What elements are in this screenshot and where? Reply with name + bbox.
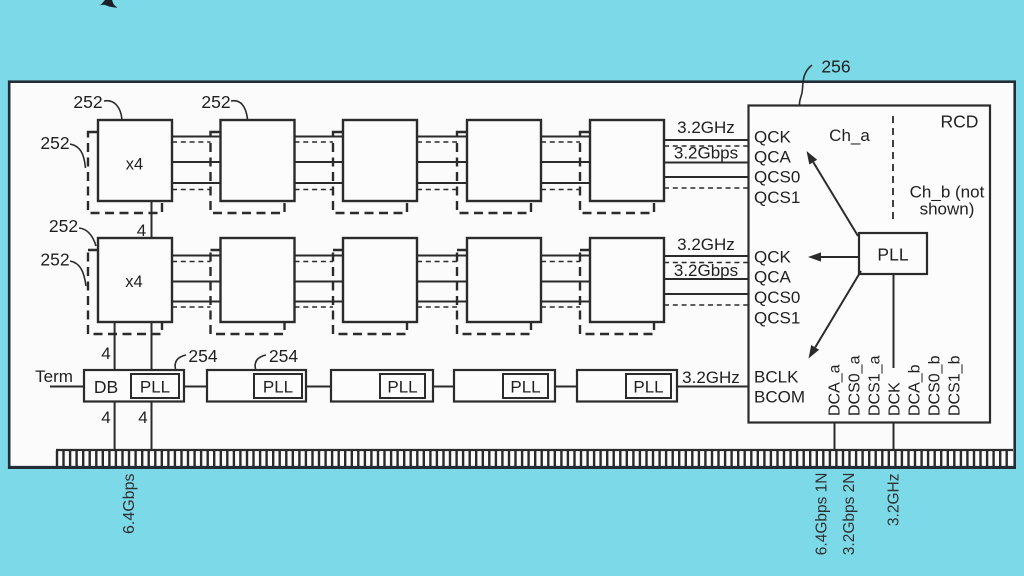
svg-text:QCS0: QCS0: [754, 168, 800, 187]
svg-text:QCA: QCA: [754, 268, 792, 287]
svg-text:QCK: QCK: [754, 248, 792, 267]
svg-text:PLL: PLL: [140, 378, 170, 397]
svg-text:252: 252: [201, 92, 230, 112]
svg-text:DCA_a: DCA_a: [827, 364, 844, 416]
svg-text:DCS1_a: DCS1_a: [867, 355, 884, 416]
svg-text:x4: x4: [125, 273, 142, 291]
svg-text:QCS1: QCS1: [754, 309, 800, 328]
svg-text:QCS1: QCS1: [754, 188, 800, 207]
svg-text:256: 256: [821, 57, 850, 77]
svg-text:3.2GHz: 3.2GHz: [682, 368, 740, 387]
svg-text:PLL: PLL: [387, 378, 417, 397]
svg-text:PLL: PLL: [510, 378, 540, 397]
svg-text:DCS0_a: DCS0_a: [847, 355, 864, 416]
svg-text:QCK: QCK: [754, 128, 792, 147]
svg-text:Term: Term: [35, 367, 73, 386]
svg-text:BCLK: BCLK: [754, 368, 799, 387]
svg-text:4: 4: [137, 221, 146, 240]
svg-text:4: 4: [138, 408, 147, 427]
svg-text:6.4Gbps 1N: 6.4Gbps 1N: [814, 473, 831, 556]
svg-text:254: 254: [269, 346, 298, 366]
svg-text:3.2GHz: 3.2GHz: [886, 474, 903, 527]
svg-text:3.2Gbps 2N: 3.2Gbps 2N: [841, 473, 858, 556]
svg-text:6.4Gbps: 6.4Gbps: [121, 474, 138, 534]
svg-text:252: 252: [49, 216, 78, 236]
svg-text:RCD: RCD: [941, 112, 979, 132]
svg-text:3.2GHz: 3.2GHz: [677, 235, 735, 254]
svg-text:BCOM: BCOM: [754, 388, 805, 407]
svg-text:PLL: PLL: [263, 378, 293, 397]
svg-text:4: 4: [101, 408, 110, 427]
svg-text:252: 252: [40, 133, 69, 153]
svg-text:3.2Gbps: 3.2Gbps: [674, 144, 738, 163]
svg-text:shown): shown): [920, 200, 975, 219]
svg-text:DCA_b: DCA_b: [907, 364, 924, 416]
svg-text:QCA: QCA: [754, 148, 792, 167]
svg-text:Ch_a: Ch_a: [829, 126, 870, 145]
svg-text:3.2GHz: 3.2GHz: [677, 118, 735, 137]
svg-text:3.2Gbps: 3.2Gbps: [674, 261, 738, 280]
svg-text:DCS1_b: DCS1_b: [947, 355, 964, 416]
svg-text:254: 254: [188, 346, 217, 366]
svg-text:DB: DB: [94, 377, 118, 397]
svg-text:x4: x4: [126, 156, 143, 174]
svg-text:4: 4: [101, 344, 110, 363]
svg-text:DCS0_b: DCS0_b: [927, 355, 944, 416]
svg-text:PLL: PLL: [633, 378, 663, 397]
svg-text:252: 252: [40, 250, 69, 270]
svg-text:PLL: PLL: [877, 245, 908, 265]
svg-text:252: 252: [73, 92, 102, 112]
svg-text:DCK: DCK: [887, 382, 904, 416]
svg-text:QCS0: QCS0: [754, 288, 800, 307]
